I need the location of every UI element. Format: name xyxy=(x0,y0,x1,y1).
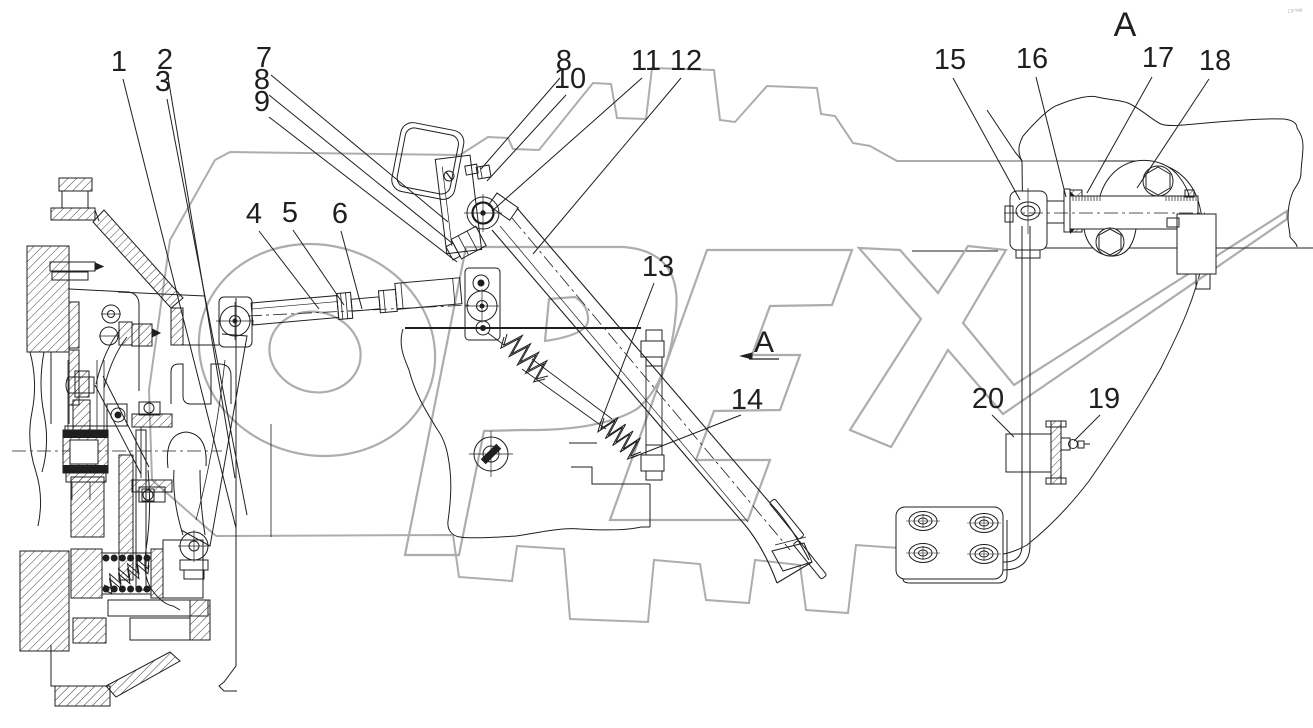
svg-text:19: 19 xyxy=(1088,383,1120,415)
svg-text:20: 20 xyxy=(972,383,1004,415)
svg-text:5: 5 xyxy=(282,197,298,229)
svg-text:18: 18 xyxy=(1199,45,1231,77)
svg-text:12: 12 xyxy=(670,45,702,77)
svg-text:1: 1 xyxy=(111,46,127,78)
svg-text:15: 15 xyxy=(934,44,966,76)
svg-text:11: 11 xyxy=(631,45,661,77)
svg-text:9: 9 xyxy=(254,86,270,118)
svg-text:A: A xyxy=(754,326,774,359)
svg-text:A: A xyxy=(1114,6,1137,44)
svg-text:10: 10 xyxy=(554,63,586,95)
svg-text:4: 4 xyxy=(246,198,262,230)
svg-text:□ᵒ ᵇᵒᵇ: □ᵒ ᵇᵒᵇ xyxy=(1288,8,1303,15)
svg-text:16: 16 xyxy=(1016,43,1048,75)
svg-text:14: 14 xyxy=(731,384,763,416)
svg-text:6: 6 xyxy=(332,198,348,230)
svg-text:3: 3 xyxy=(155,66,171,98)
svg-text:17: 17 xyxy=(1142,42,1174,74)
svg-text:13: 13 xyxy=(642,251,674,283)
